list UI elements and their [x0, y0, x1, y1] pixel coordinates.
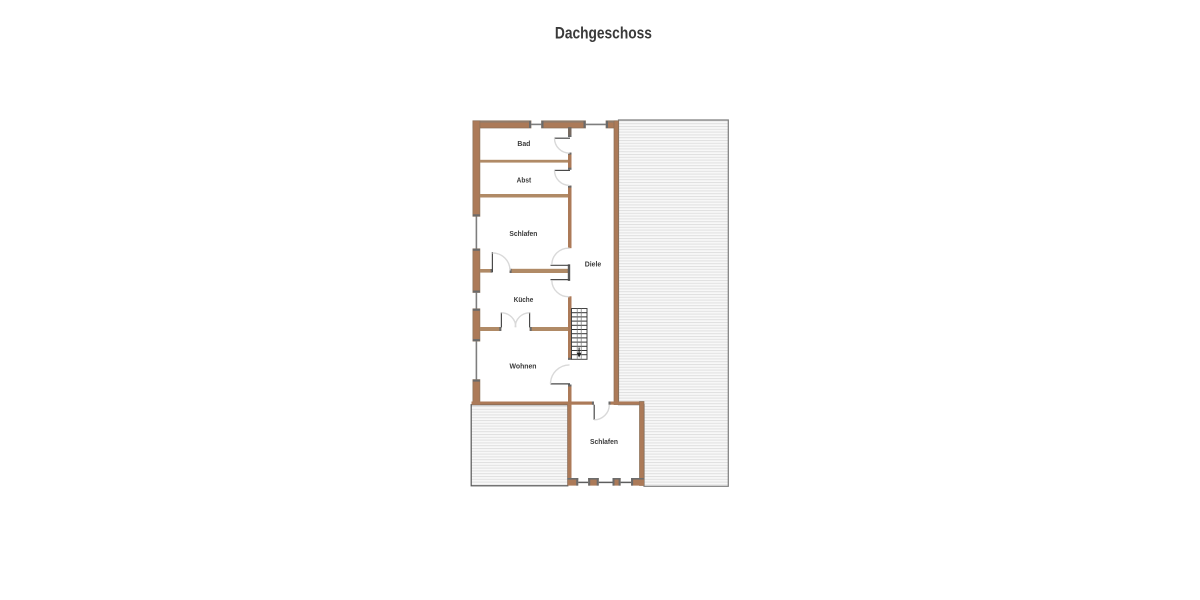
svg-text:Schlafen: Schlafen — [509, 229, 537, 238]
svg-text:Diele: Diele — [585, 260, 602, 269]
svg-text:Wohnen: Wohnen — [510, 362, 537, 371]
svg-text:Schlafen: Schlafen — [590, 437, 618, 446]
svg-text:Dachgeschoss: Dachgeschoss — [555, 25, 652, 43]
svg-text:Abst: Abst — [517, 175, 532, 184]
svg-text:Küche: Küche — [514, 295, 534, 304]
svg-text:Bad: Bad — [517, 139, 530, 148]
